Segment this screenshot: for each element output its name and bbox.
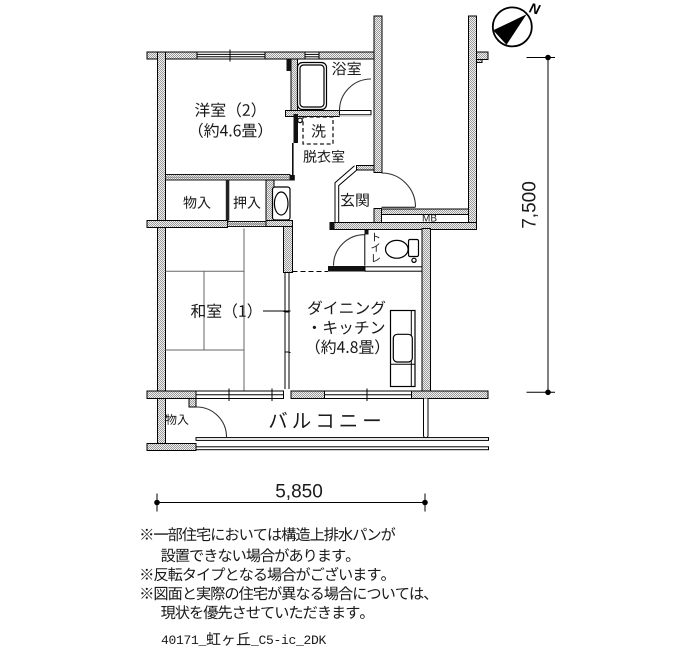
svg-text:7,500: 7,500 [520,181,541,229]
svg-text:40171_: 40171_ [161,633,207,648]
svg-text:_C5-ic_2DK: _C5-ic_2DK [250,633,327,648]
svg-text:5,850: 5,850 [275,482,323,503]
svg-text:N: N [528,0,543,18]
